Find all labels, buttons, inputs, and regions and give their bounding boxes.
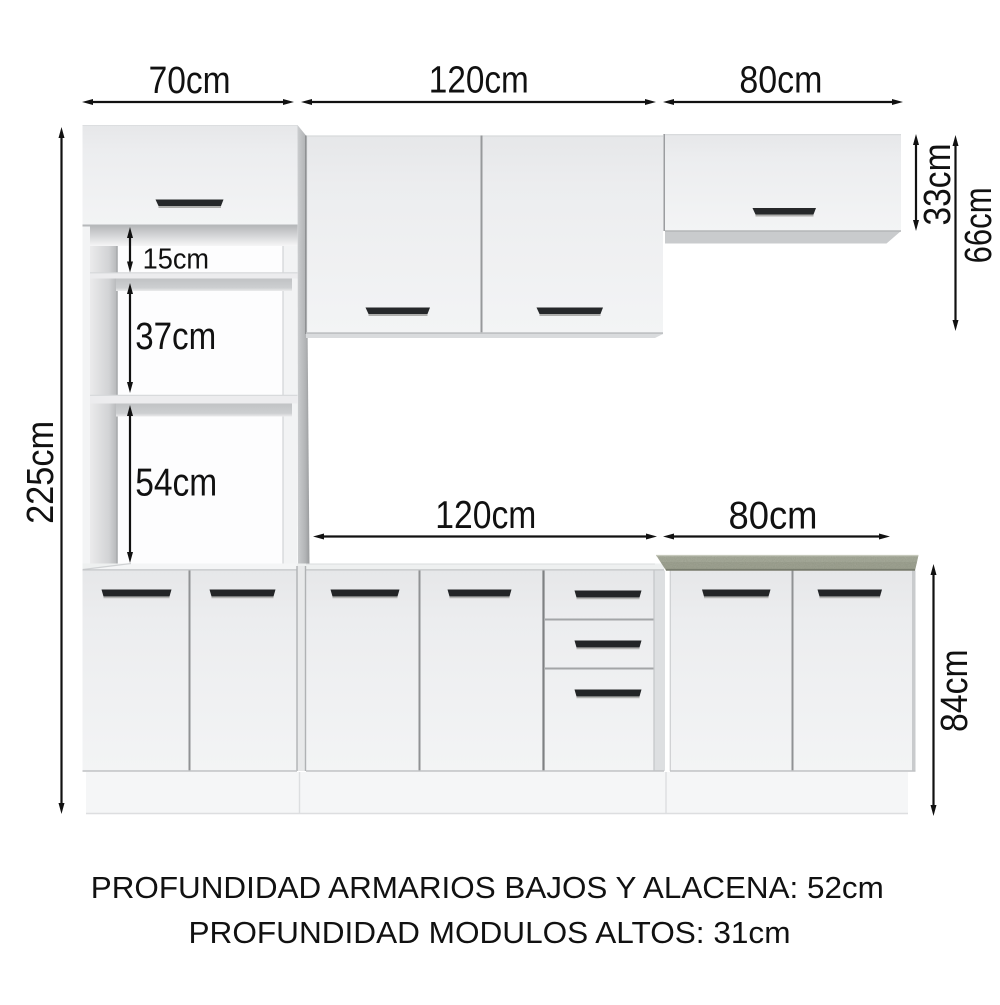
svg-text:225cm: 225cm bbox=[20, 421, 62, 524]
svg-text:70cm: 70cm bbox=[149, 60, 231, 102]
svg-text:80cm: 80cm bbox=[739, 60, 822, 102]
svg-text:54cm: 54cm bbox=[135, 462, 217, 505]
svg-text:120cm: 120cm bbox=[435, 494, 536, 537]
svg-text:PROFUNDIDAD ARMARIOS BAJOS Y A: PROFUNDIDAD ARMARIOS BAJOS Y ALACENA: 52… bbox=[91, 870, 884, 905]
svg-text:120cm: 120cm bbox=[429, 60, 529, 102]
svg-text:15cm: 15cm bbox=[143, 244, 210, 276]
svg-text:PROFUNDIDAD MODULOS ALTOS: 31c: PROFUNDIDAD MODULOS ALTOS: 31cm bbox=[189, 915, 791, 950]
svg-text:37cm: 37cm bbox=[135, 316, 216, 358]
svg-text:66cm: 66cm bbox=[958, 187, 1000, 263]
svg-text:84cm: 84cm bbox=[934, 649, 976, 732]
svg-text:80cm: 80cm bbox=[729, 495, 818, 538]
svg-text:33cm: 33cm bbox=[917, 144, 959, 226]
